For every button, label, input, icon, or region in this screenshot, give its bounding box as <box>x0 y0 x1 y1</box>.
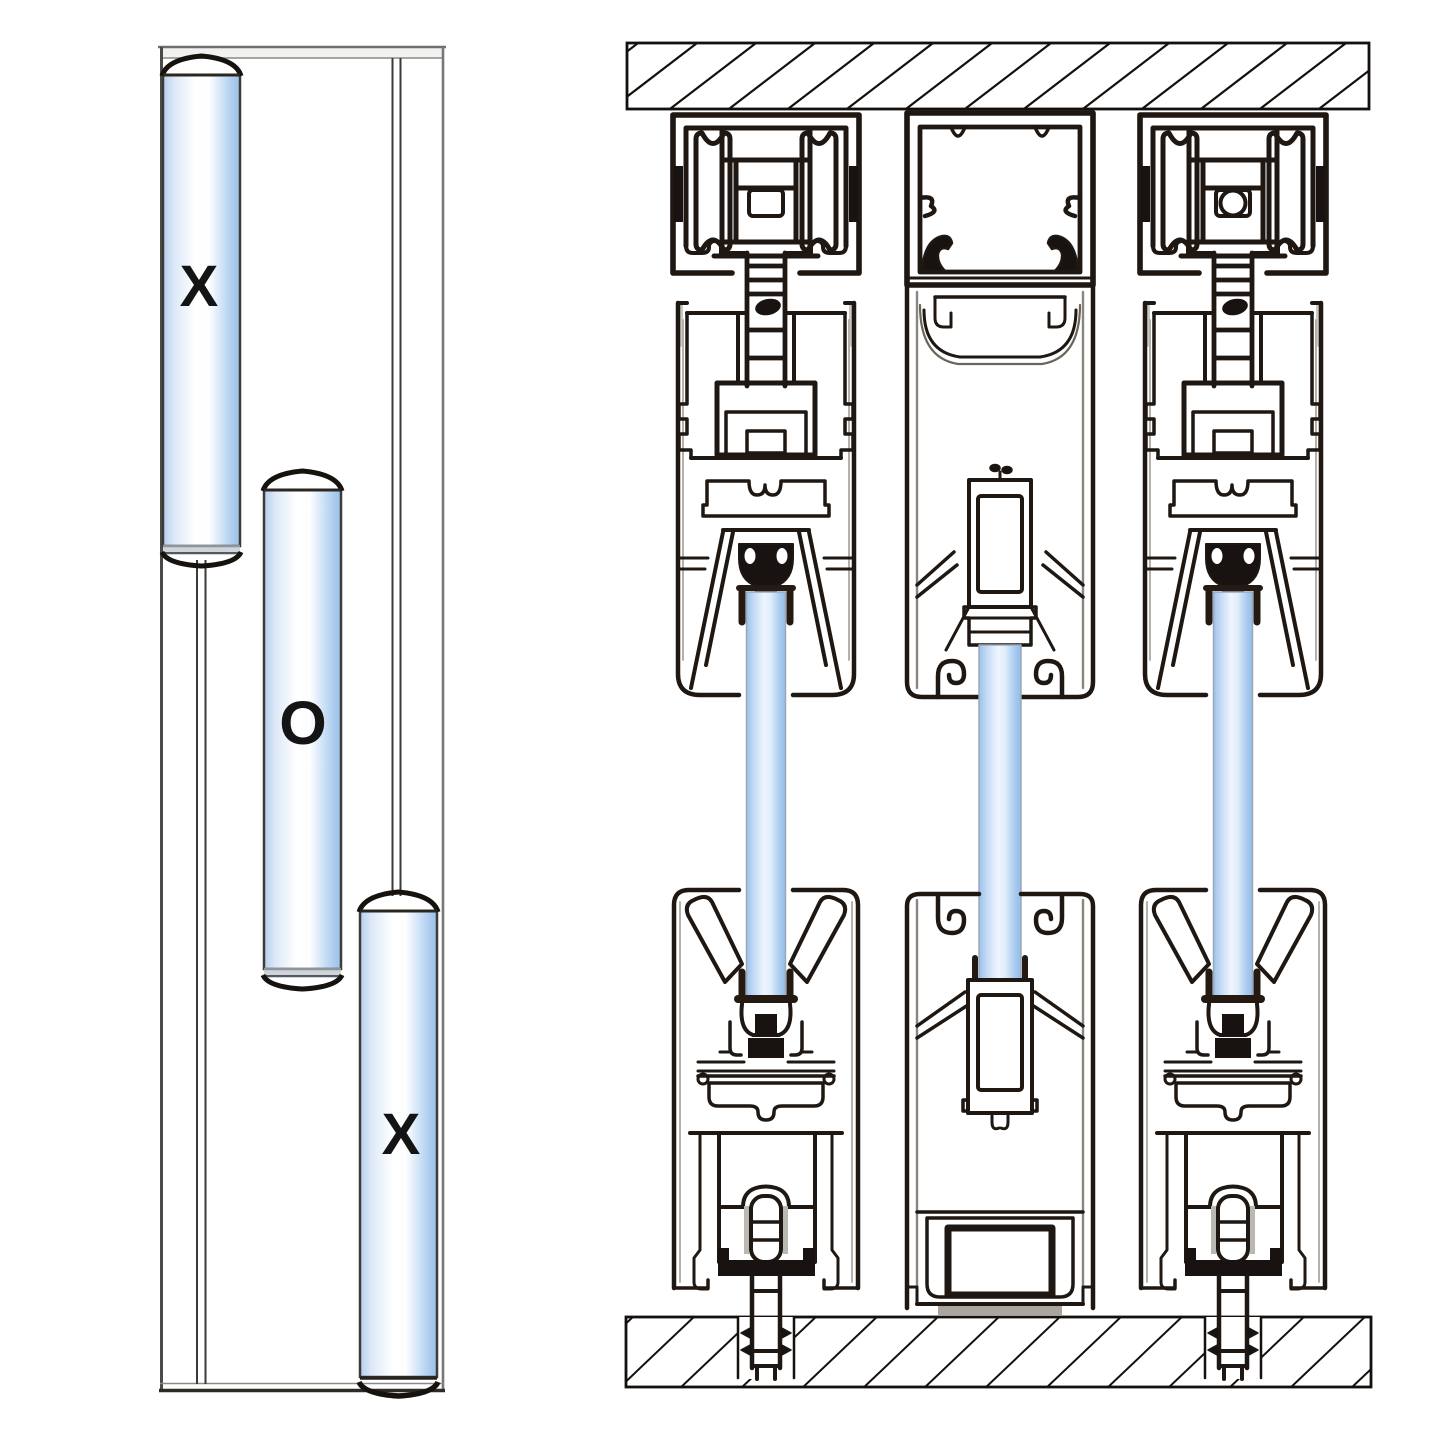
svg-text:X: X <box>382 1102 421 1167</box>
svg-text:X: X <box>180 254 219 319</box>
svg-text:O: O <box>279 689 326 757</box>
